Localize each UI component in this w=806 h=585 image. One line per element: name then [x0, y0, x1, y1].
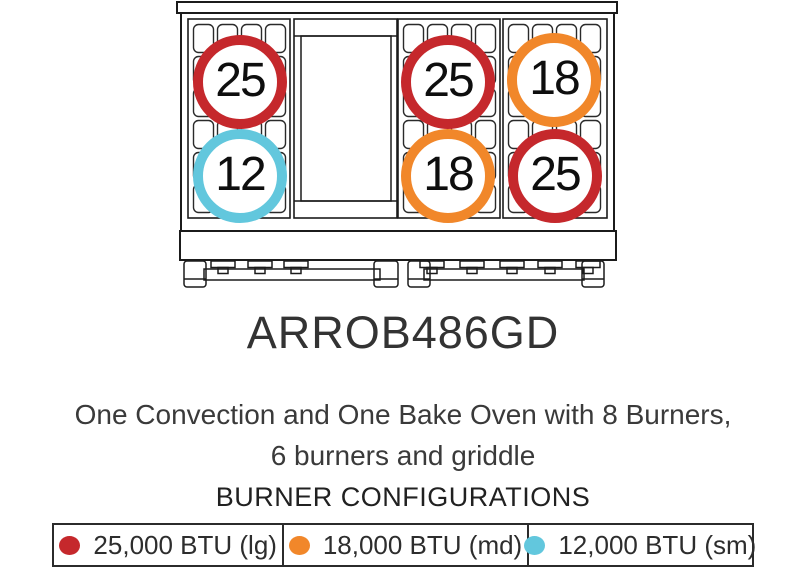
griddle	[294, 36, 397, 201]
control-panel	[180, 231, 616, 260]
burner-btu-value: 25	[530, 151, 579, 199]
model-number: ARROB486GD	[0, 310, 806, 355]
left-oven-door	[184, 261, 398, 287]
small-burner-dot-icon	[524, 536, 545, 555]
description-line-1: One Convection and One Bake Oven with 8 …	[75, 399, 732, 430]
right-oven-door	[408, 261, 604, 287]
description-line-2: 6 burners and griddle	[271, 440, 536, 471]
large-burner-dot-icon	[59, 536, 80, 555]
legend-item-small-burner: 12,000 BTU (sm)	[527, 525, 752, 565]
medium-burner-dot-icon	[289, 536, 310, 555]
burner-circle-center-bottom: 18	[401, 129, 495, 223]
legend-label: 12,000 BTU (sm)	[558, 530, 756, 561]
product-description: One Convection and One Bake Oven with 8 …	[0, 395, 806, 476]
burner-btu-value: 18	[529, 55, 578, 103]
burner-btu-value: 18	[423, 151, 472, 199]
burner-btu-value: 25	[215, 57, 264, 105]
range-line-art-svg	[0, 0, 806, 300]
burner-circle-right-bottom: 25	[508, 129, 602, 223]
burner-btu-value: 25	[423, 57, 472, 105]
legend-item-large-burner: 25,000 BTU (lg)	[54, 525, 282, 565]
legend-table: 25,000 BTU (lg) 18,000 BTU (md) 12,000 B…	[52, 523, 754, 567]
backguard	[177, 2, 617, 13]
range-diagram: 25 12 25 18 18 25	[0, 0, 806, 300]
legend-label: 18,000 BTU (md)	[323, 530, 522, 561]
burner-circle-center-top: 25	[401, 35, 495, 129]
legend-label: 25,000 BTU (lg)	[93, 530, 277, 561]
burner-circle-right-top: 18	[507, 33, 601, 127]
burner-btu-value: 12	[215, 151, 264, 199]
burner-circle-left-bottom: 12	[193, 129, 287, 223]
spec-sheet-page: 25 12 25 18 18 25 ARROB486GD One Convect…	[0, 0, 806, 585]
burner-circle-left-top: 25	[193, 35, 287, 129]
legend-item-medium-burner: 18,000 BTU (md)	[282, 525, 526, 565]
burner-configurations-title: BURNER CONFIGURATIONS	[0, 482, 806, 513]
